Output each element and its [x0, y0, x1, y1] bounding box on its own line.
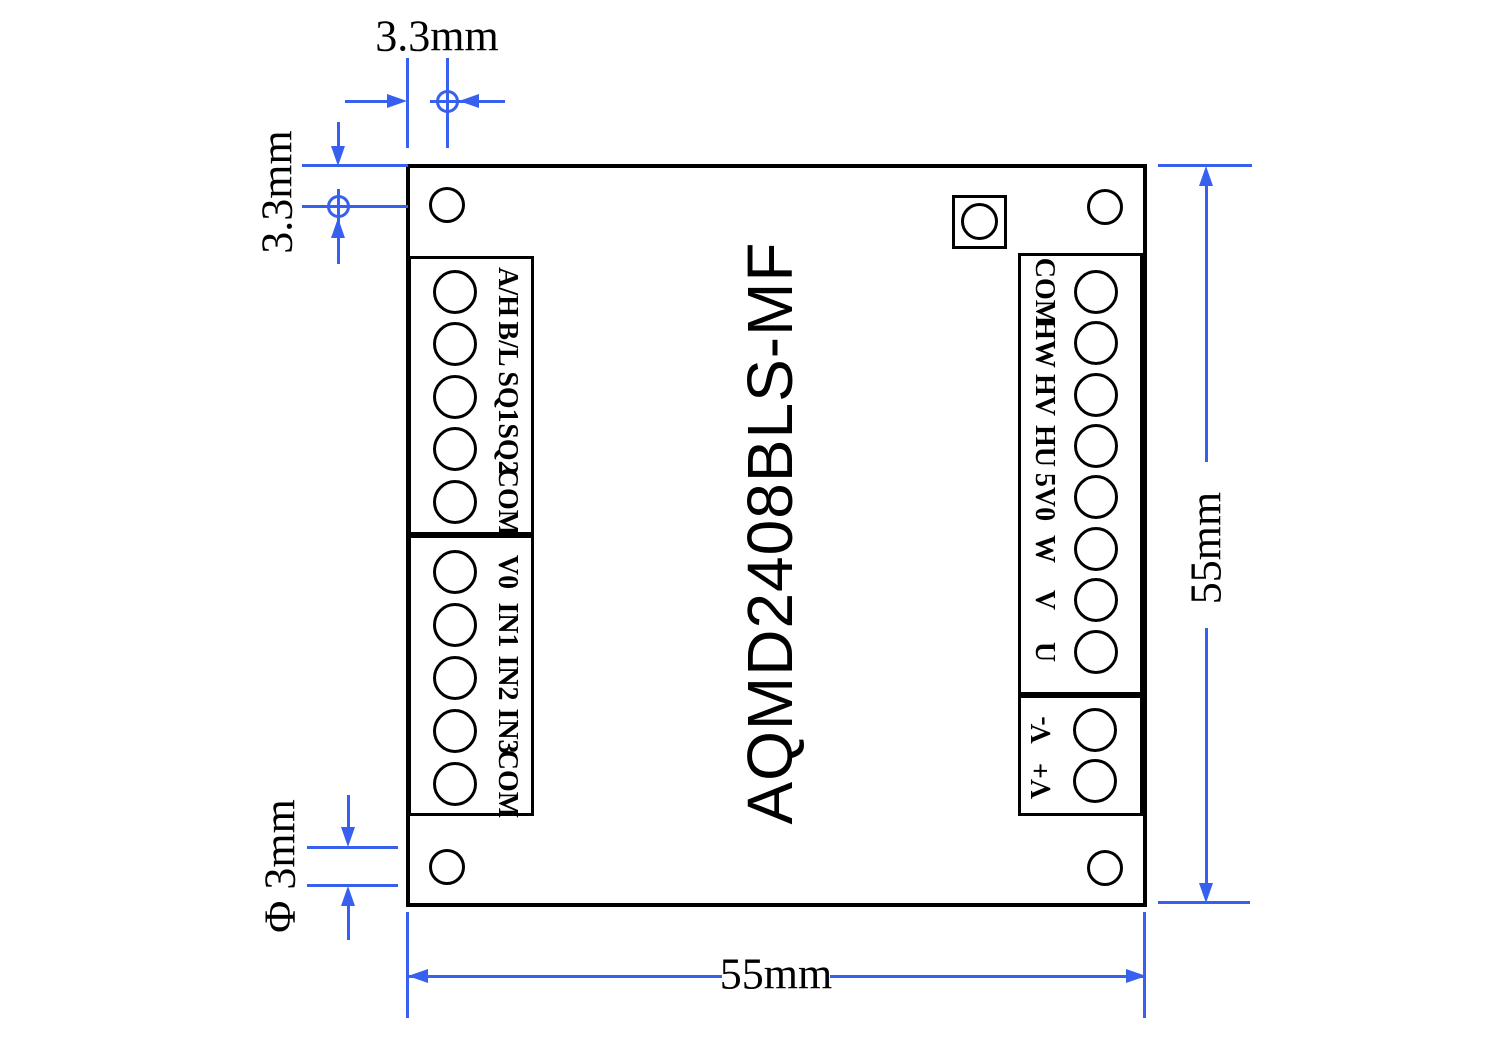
terminal-circle [1074, 630, 1118, 674]
dim-board-width-label: 55mm [720, 949, 832, 1000]
terminal-label: 5V0 [1028, 473, 1060, 521]
terminal-label: V [1028, 590, 1060, 610]
terminal-label: HV [1028, 374, 1060, 416]
arrowhead-down-icon [341, 827, 355, 847]
dimension-drawing: AQMD2408BLS-MF A/H B/L SQ1 SQ2 COM V0 IN… [0, 0, 1500, 1039]
terminal-label: B/L [491, 321, 523, 366]
terminal-label: HW [1028, 318, 1060, 368]
mounting-hole-top-right [1087, 189, 1123, 225]
terminal-label: A/H [491, 267, 523, 317]
arrowhead-right-icon [1126, 969, 1146, 983]
terminal-circle [433, 762, 477, 806]
terminal-circle [1074, 373, 1118, 417]
arrowhead-up-icon [341, 886, 355, 906]
terminal-circle [433, 480, 477, 524]
terminal-circle [1074, 475, 1118, 519]
terminal-label: HU [1028, 425, 1060, 467]
dim-extension-line [302, 164, 408, 167]
board-title: AQMD2408BLS-MF [733, 241, 807, 824]
terminal-label: U [1028, 642, 1060, 662]
dim-hole-offset-x-label: 3.3mm [375, 11, 498, 62]
arrowhead-down-icon [331, 146, 345, 166]
terminal-label: SQ1 [491, 371, 523, 422]
terminal-circle [433, 270, 477, 314]
dim-extension-line [406, 912, 409, 1018]
mounting-hole-bottom-left [429, 849, 465, 885]
pushbutton-circle [961, 203, 998, 240]
terminal-label: COM [1028, 258, 1060, 326]
arrowhead-right-icon [387, 94, 407, 108]
dim-hole-offset-y-label: 3.3mm [252, 130, 303, 253]
dim-line [830, 975, 1144, 978]
dim-arrow-line [337, 238, 340, 264]
terminal-circle [1074, 527, 1118, 571]
terminal-label: W [1028, 535, 1060, 563]
terminal-label: V0 [491, 555, 523, 589]
terminal-circle [1073, 708, 1117, 752]
terminal-circle [1074, 578, 1118, 622]
arrowhead-down-icon [1199, 883, 1213, 903]
dim-arrow-line [347, 906, 350, 940]
terminal-circle [433, 550, 477, 594]
arrowhead-left-icon [459, 94, 479, 108]
terminal-label: V+ [1026, 763, 1058, 799]
terminal-circle [433, 656, 477, 700]
terminal-circle [1074, 270, 1118, 314]
dim-extension-line [302, 205, 408, 208]
terminal-circle [433, 322, 477, 366]
dim-arrow-line [337, 122, 340, 148]
terminal-label: IN3 [491, 708, 523, 753]
arrowhead-up-icon [1199, 166, 1213, 186]
dim-arrow-line [347, 795, 350, 828]
terminal-circle [1074, 424, 1118, 468]
terminal-circle [433, 427, 477, 471]
terminal-circle [1074, 321, 1118, 365]
dim-arrow-line [478, 100, 505, 103]
arrowhead-up-icon [331, 218, 345, 238]
mounting-hole-bottom-right [1087, 850, 1123, 886]
terminal-circle [1073, 759, 1117, 803]
terminal-label: IN1 [491, 602, 523, 647]
arrowhead-left-icon [408, 969, 428, 983]
terminal-label: COM [491, 468, 523, 536]
terminal-circle [433, 375, 477, 419]
terminal-circle [433, 709, 477, 753]
terminal-label: COM [491, 750, 523, 818]
terminal-label: V- [1026, 716, 1058, 743]
dim-extension-line [1143, 912, 1146, 1018]
dim-arrow-line [345, 100, 389, 103]
dim-board-height-label: 55mm [1181, 492, 1232, 604]
mounting-hole-top-left [429, 187, 465, 223]
terminal-label: IN2 [491, 655, 523, 700]
terminal-circle [433, 603, 477, 647]
dim-line [408, 975, 722, 978]
dim-hole-diameter-label: Φ 3mm [255, 799, 306, 933]
dim-line [1205, 184, 1208, 462]
dim-line [1205, 628, 1208, 884]
